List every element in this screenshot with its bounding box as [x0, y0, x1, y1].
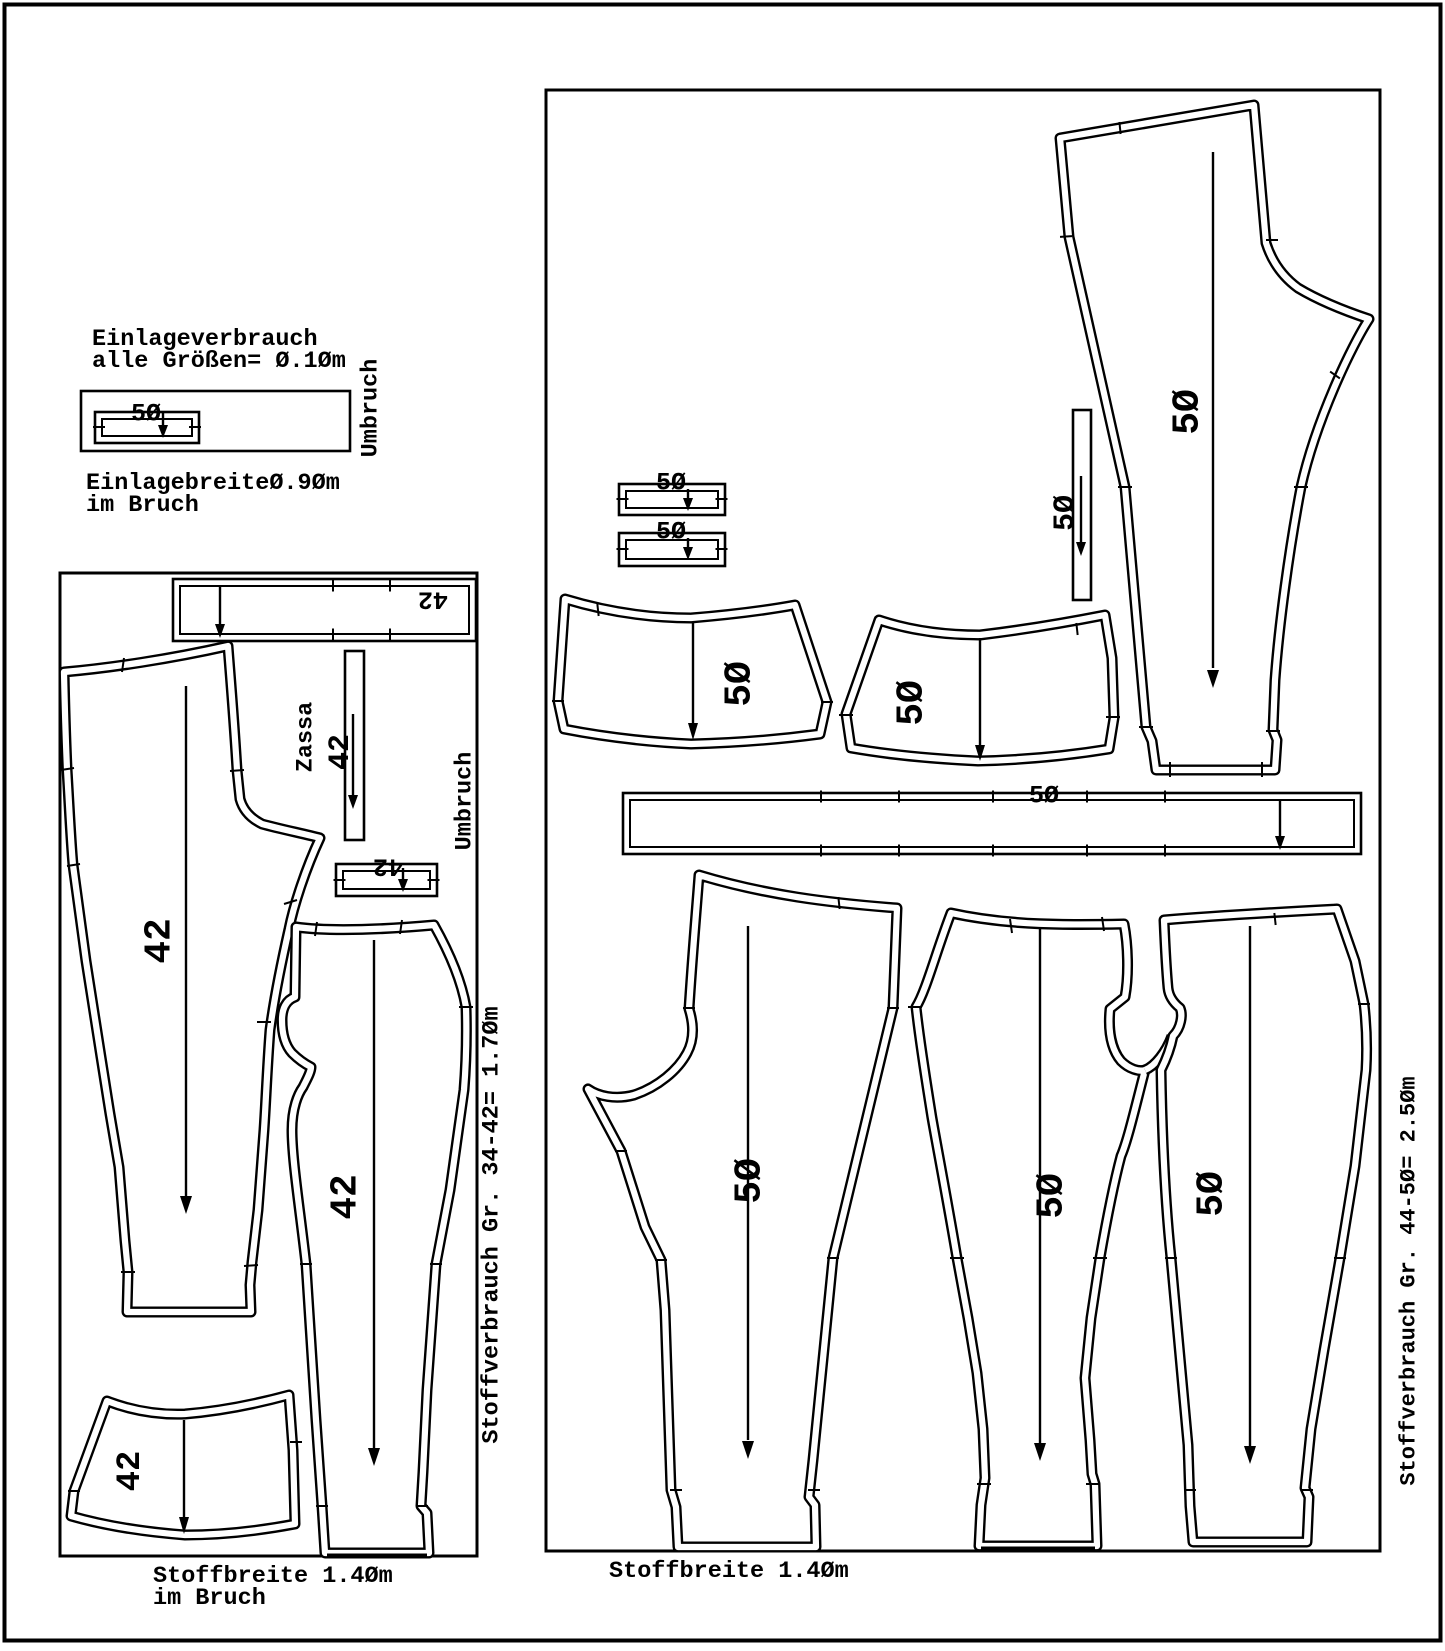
- svg-text:Zassa: Zassa: [293, 702, 320, 773]
- svg-text:5Ø: 5Ø: [1029, 782, 1059, 811]
- svg-text:Stoffbreite 1.4Øm: Stoffbreite 1.4Øm: [609, 1558, 849, 1585]
- svg-text:42: 42: [112, 1451, 150, 1492]
- svg-text:5Ø: 5Ø: [656, 518, 686, 547]
- svg-text:im Bruch: im Bruch: [153, 1585, 266, 1612]
- svg-text:5Ø: 5Ø: [131, 400, 161, 429]
- svg-text:im Bruch: im Bruch: [86, 492, 199, 519]
- svg-text:42: 42: [325, 1174, 368, 1220]
- svg-text:5Ø: 5Ø: [729, 1158, 772, 1204]
- svg-text:42: 42: [139, 918, 182, 964]
- svg-text:Umbruch: Umbruch: [358, 359, 385, 458]
- svg-text:5Ø: 5Ø: [1031, 1173, 1074, 1219]
- svg-text:42: 42: [373, 852, 403, 881]
- svg-text:Stoffverbrauch Gr. 44-5Ø= 2.5Ø: Stoffverbrauch Gr. 44-5Ø= 2.5Øm: [1397, 1076, 1422, 1485]
- svg-text:42: 42: [324, 734, 358, 770]
- svg-text:alle Größen= Ø.1Øm: alle Größen= Ø.1Øm: [92, 348, 346, 375]
- svg-text:42: 42: [418, 585, 448, 614]
- svg-text:5Ø: 5Ø: [1049, 495, 1083, 531]
- svg-text:5Ø: 5Ø: [1191, 1171, 1234, 1217]
- svg-text:5Ø: 5Ø: [719, 661, 762, 707]
- svg-text:5Ø: 5Ø: [1167, 389, 1210, 435]
- svg-text:Umbruch: Umbruch: [452, 752, 479, 851]
- svg-text:5Ø: 5Ø: [656, 469, 686, 498]
- svg-text:Stoffverbrauch Gr. 34-42= 1.7Ø: Stoffverbrauch Gr. 34-42= 1.7Øm: [479, 1006, 506, 1443]
- svg-text:5Ø: 5Ø: [891, 680, 934, 726]
